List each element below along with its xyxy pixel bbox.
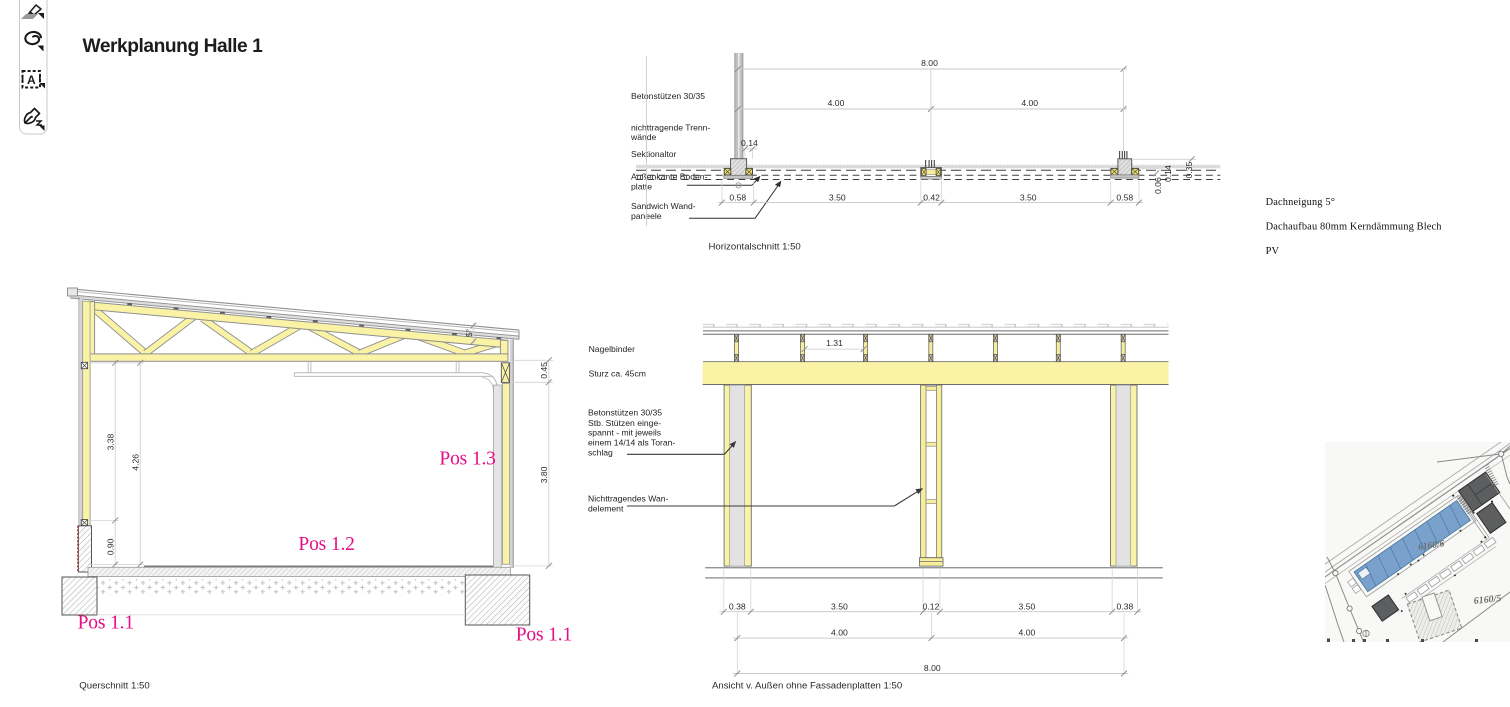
svg-text:0.14: 0.14	[741, 138, 758, 148]
svg-text:Dachneigung 5°: Dachneigung 5°	[1266, 197, 1335, 208]
svg-text:A: A	[27, 73, 36, 87]
svg-text:Betonstützen 30/35: Betonstützen 30/35	[631, 91, 705, 101]
svg-text:8.00: 8.00	[924, 663, 941, 673]
svg-text:Nichttragendes Wan-: Nichttragendes Wan-	[588, 494, 669, 504]
svg-text:platte: platte	[631, 182, 652, 192]
svg-text:4.00: 4.00	[828, 98, 845, 108]
svg-text:Nagelbinder: Nagelbinder	[589, 344, 635, 354]
svg-text:5°: 5°	[464, 329, 474, 337]
svg-text:nichttragende Trenn-: nichttragende Trenn-	[631, 123, 710, 133]
svg-text:Ansicht v. Außen ohne Fassaden: Ansicht v. Außen ohne Fassadenplatten 1:…	[712, 681, 902, 692]
svg-text:0.14: 0.14	[1163, 165, 1173, 182]
svg-text:3.80: 3.80	[539, 466, 549, 483]
svg-text:Dachaufbau 80mm Kerndämmung Bl: Dachaufbau 80mm Kerndämmung Blech	[1266, 222, 1443, 233]
svg-text:4.00: 4.00	[831, 627, 848, 637]
svg-text:Pos 1.1: Pos 1.1	[78, 613, 134, 634]
svg-text:3.50: 3.50	[831, 602, 848, 612]
svg-text:4.00: 4.00	[1019, 627, 1036, 637]
svg-text:3.50: 3.50	[1020, 192, 1037, 202]
svg-text:einem 14/14 als Toran-: einem 14/14 als Toran-	[588, 438, 675, 448]
svg-text:0.58: 0.58	[1116, 192, 1133, 202]
svg-text:Sandwich Wand-: Sandwich Wand-	[631, 201, 696, 211]
svg-text:3.50: 3.50	[829, 192, 846, 202]
svg-text:Horizontalschnitt 1:50: Horizontalschnitt 1:50	[709, 242, 801, 253]
svg-text:Sturz ca. 45cm: Sturz ca. 45cm	[589, 369, 646, 379]
svg-text:3.38: 3.38	[106, 433, 116, 450]
svg-text:0.58: 0.58	[729, 192, 746, 202]
svg-text:1.31: 1.31	[826, 338, 843, 348]
svg-text:PV: PV	[1266, 246, 1280, 257]
svg-text:Pos 1.1: Pos 1.1	[516, 625, 572, 646]
svg-text:0.12: 0.12	[923, 602, 940, 612]
svg-text:schlag: schlag	[588, 448, 613, 458]
svg-text:0.06: 0.06	[1153, 177, 1163, 194]
svg-text:Betonstützen 30/35: Betonstützen 30/35	[588, 408, 662, 418]
svg-text:delement: delement	[588, 504, 624, 514]
svg-text:4.26: 4.26	[131, 454, 141, 471]
svg-text:Pos 1.2: Pos 1.2	[298, 534, 354, 555]
svg-text:Stb. Stützen einge-: Stb. Stützen einge-	[588, 418, 661, 428]
svg-text:Pos 1.3: Pos 1.3	[439, 449, 495, 470]
svg-text:Querschnitt 1:50: Querschnitt 1:50	[79, 681, 149, 692]
svg-text:0.45: 0.45	[539, 362, 549, 379]
svg-text:3.50: 3.50	[1019, 602, 1036, 612]
svg-text:0.35: 0.35	[1184, 162, 1194, 179]
svg-text:4.00: 4.00	[1021, 98, 1038, 108]
svg-text:0.42: 0.42	[923, 192, 940, 202]
svg-text:spannt - mit jeweils: spannt - mit jeweils	[588, 428, 661, 438]
svg-text:wände: wände	[630, 132, 657, 142]
svg-text:0.38: 0.38	[729, 602, 746, 612]
svg-text:8.00: 8.00	[921, 58, 938, 68]
svg-text:Sektionaltor: Sektionaltor	[631, 149, 677, 159]
svg-text:0.90: 0.90	[106, 538, 116, 555]
svg-text:Werkplanung Halle 1: Werkplanung Halle 1	[83, 36, 264, 57]
svg-text:0.38: 0.38	[1117, 602, 1134, 612]
